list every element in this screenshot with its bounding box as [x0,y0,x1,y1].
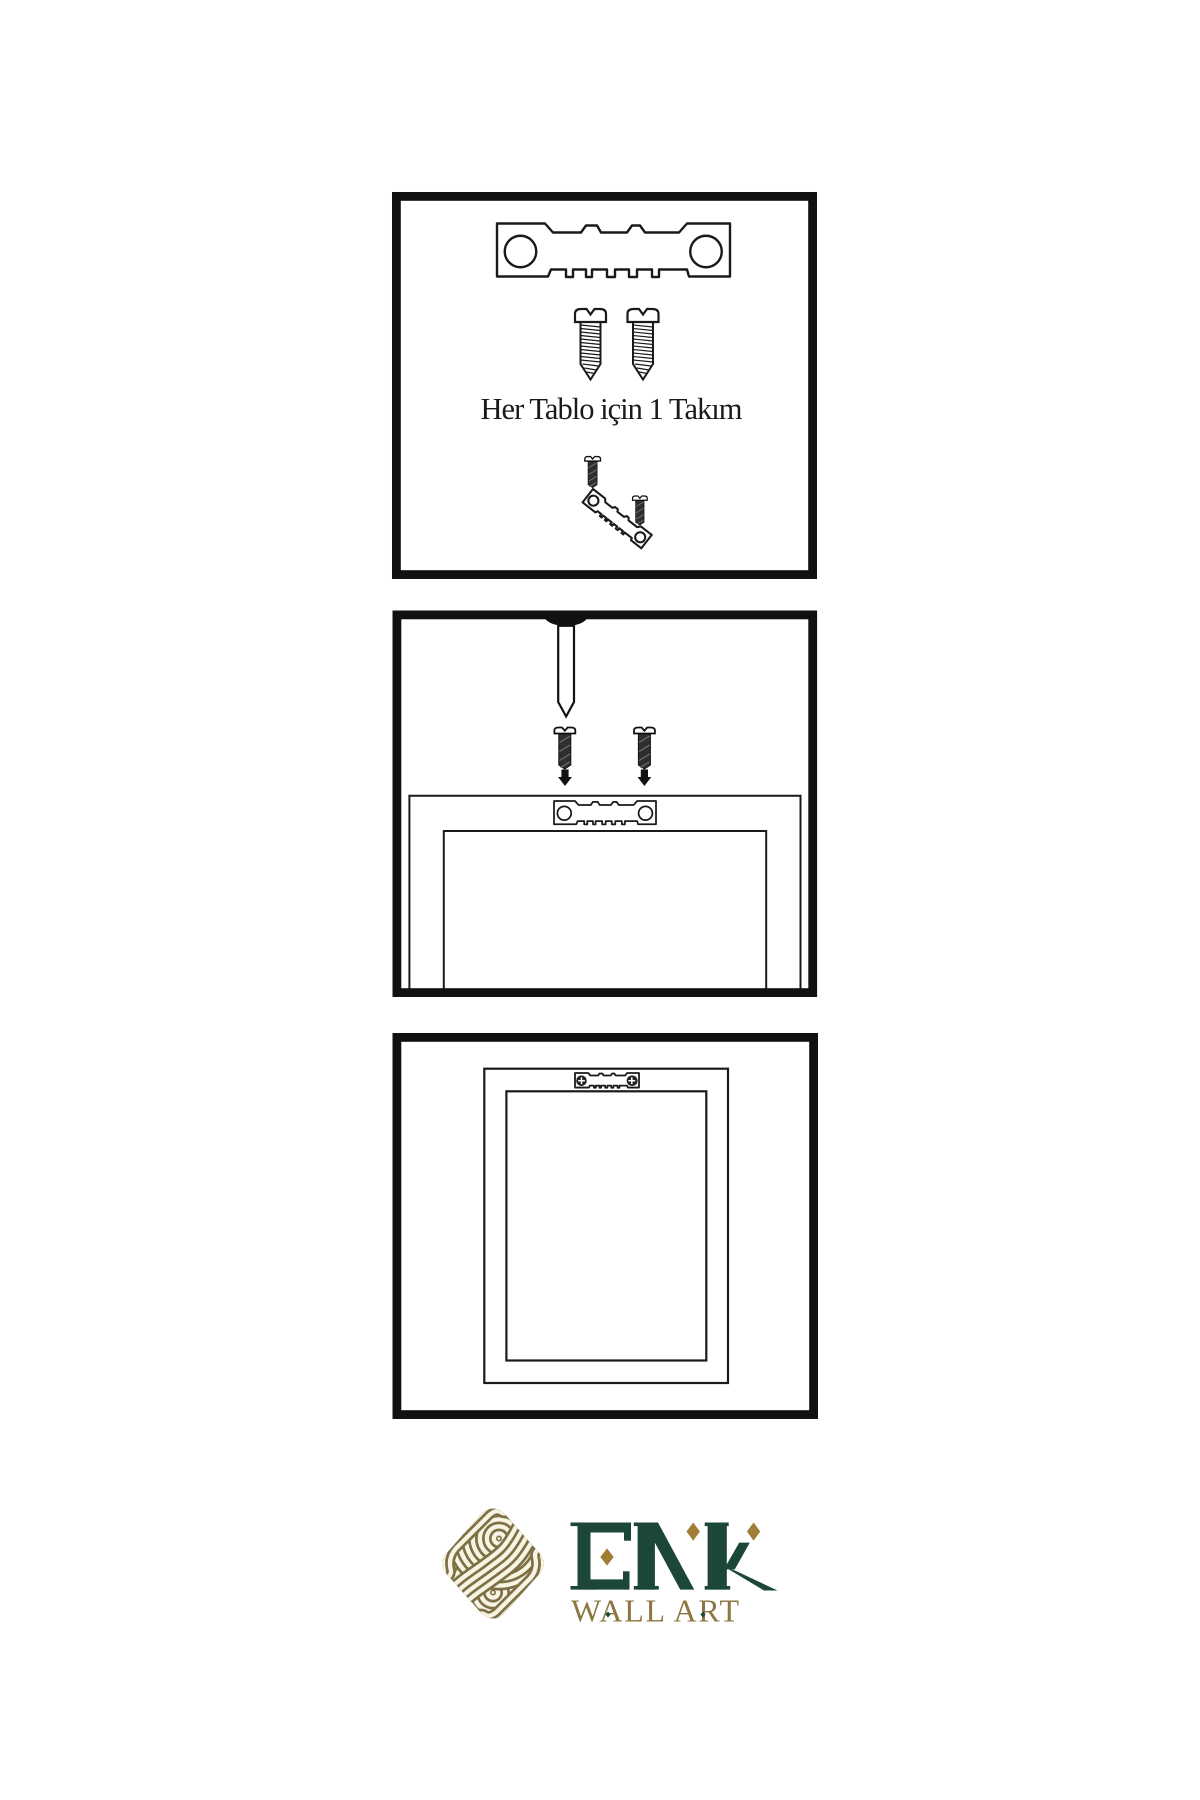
svg-text:Her Tablo için 1 Takım: Her Tablo için 1 Takım [481,392,743,426]
svg-text:WALL ART: WALL ART [571,1593,739,1629]
